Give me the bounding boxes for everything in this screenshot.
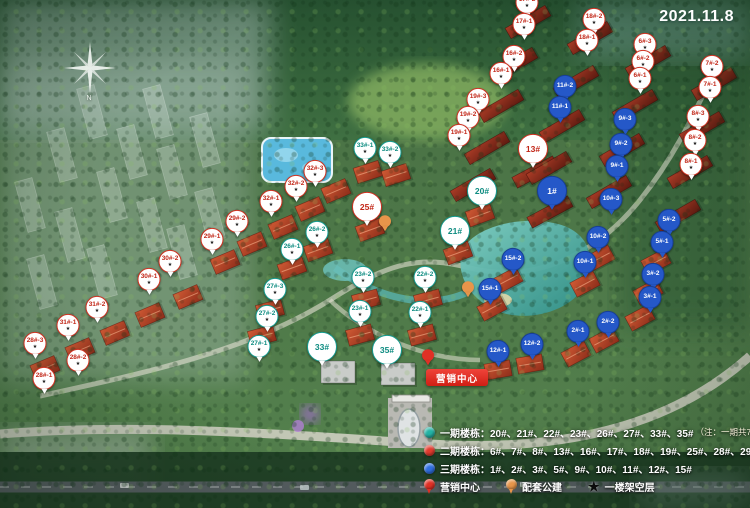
marker-23-1: 23#-1★ xyxy=(349,300,372,330)
stilt-star-icon: ★ xyxy=(588,480,600,493)
marker-33: 33# xyxy=(307,332,337,369)
marker-20: 20# xyxy=(467,176,497,213)
marker-10-1: 10#-1 xyxy=(574,251,597,281)
marker-11-1: 11#-1 xyxy=(549,96,572,126)
marker-3-1: 3#-1 xyxy=(639,286,662,316)
marker-18-1: 18#-1★ xyxy=(576,29,599,59)
marker-27-1: 27#-1★ xyxy=(248,335,271,365)
marker-26-2: 26#-2★ xyxy=(306,221,329,251)
marker-31-2: 31#-2★ xyxy=(86,296,109,326)
marker-33-2: 33#-2★ xyxy=(379,141,402,171)
marker-15-2: 15#-2 xyxy=(502,248,525,278)
marker-15-1: 15#-1 xyxy=(479,278,502,308)
marker-29-1: 29#-1★ xyxy=(201,228,224,258)
marker-27-3: 27#-3★ xyxy=(264,278,287,308)
marker-28-1: 28#-1★ xyxy=(33,367,56,397)
marker-7-1: 7#-1★ xyxy=(699,76,722,106)
amenity-pin xyxy=(462,281,474,300)
marker-32-1: 32#-1★ xyxy=(260,190,283,220)
phase1-circle-icon xyxy=(424,427,435,438)
marker-2-1: 2#-1 xyxy=(567,320,590,350)
marker-8-1: 8#-1★ xyxy=(680,153,703,183)
marker-1: 1# xyxy=(537,176,567,213)
marketing-center-banner: 营销中心 xyxy=(426,369,488,386)
marker-2-2: 2#-2 xyxy=(597,311,620,341)
marker-32-2: 32#-2★ xyxy=(285,175,308,205)
masterplan-rendering: N 2021.11.8 17#-2★17#-1★16#-2★16#-1★19#-… xyxy=(0,0,750,508)
marker-23-2: 23#-2★ xyxy=(352,266,375,296)
marker-17-1: 17#-1★ xyxy=(513,13,536,43)
marker-29-2: 29#-2★ xyxy=(226,210,249,240)
legend-phase1-label: 一期楼栋： xyxy=(440,425,490,440)
marker-30-2: 30#-2★ xyxy=(159,250,182,280)
legend-row-symbols: 营销中心 配套公建 ★ 一楼架空层 xyxy=(424,477,750,495)
legend-phase3-label: 三期楼栋： xyxy=(440,461,490,476)
marker-21: 21# xyxy=(440,216,470,253)
legend-phase1-value: 20#、21#、22#、23#、26#、27#、33#、35# xyxy=(490,425,693,440)
marker-33-1: 33#-1★ xyxy=(354,137,377,167)
marker-28-2: 28#-2★ xyxy=(67,349,90,379)
marker-5-1: 5#-1 xyxy=(651,231,674,261)
marker-13: 13# xyxy=(518,134,548,171)
date-stamp: 2021.11.8 xyxy=(659,8,734,26)
legend-row-phase2: 二期楼栋：6#、7#、8#、13#、16#、17#、18#、19#、25#、28… xyxy=(424,441,750,459)
legend-row-phase3: 三期楼栋：1#、2#、3#、5#、9#、10#、11#、12#、15# xyxy=(424,459,750,477)
phase3-circle-icon xyxy=(424,463,435,474)
marker-35: 35# xyxy=(372,335,402,372)
marker-31-1: 31#-1★ xyxy=(57,314,80,344)
legend-marketing-label: 营销中心 xyxy=(440,479,480,494)
legend-phase1-note: （注：一期共7栋楼180套住宅） xyxy=(695,426,750,438)
marker-22-1: 22#-1★ xyxy=(409,301,432,331)
marker-27-2: 27#-2★ xyxy=(256,305,279,335)
legend: 一期楼栋：20#、21#、22#、23#、26#、27#、33#、35# （注：… xyxy=(424,423,750,495)
marker-9-1: 9#-1 xyxy=(606,155,629,185)
amenity-pin-icon xyxy=(506,479,517,490)
legend-stilt-label: 一楼架空层 xyxy=(605,479,655,494)
marketing-pin-icon xyxy=(424,479,435,490)
marker-6-1: 6#-1★ xyxy=(629,67,652,97)
marker-30-1: 30#-1★ xyxy=(138,268,161,298)
legend-phase3-value: 1#、2#、3#、5#、9#、10#、11#、12#、15# xyxy=(490,461,692,476)
legend-row-phase1: 一期楼栋：20#、21#、22#、23#、26#、27#、33#、35# （注：… xyxy=(424,423,750,441)
amenity-pin xyxy=(379,215,391,234)
phase2-circle-icon xyxy=(424,445,435,456)
marker-25: 25# xyxy=(352,192,382,229)
marker-12-2: 12#-2 xyxy=(521,333,544,363)
marker-19-1: 19#-1★ xyxy=(448,124,471,154)
legend-amenity-label: 配套公建 xyxy=(522,479,562,494)
marker-12-1: 12#-1 xyxy=(487,340,510,370)
marker-10-3: 10#-3 xyxy=(600,188,623,218)
legend-phase2-label: 二期楼栋： xyxy=(440,443,490,458)
marker-22-2: 22#-2★ xyxy=(414,266,437,296)
marker-16-1: 16#-1★ xyxy=(490,62,513,92)
marker-26-1: 26#-1★ xyxy=(281,238,304,268)
marketing-pin xyxy=(422,349,434,368)
marker-28-3: 28#-3★ xyxy=(24,332,47,362)
legend-phase2-value: 6#、7#、8#、13#、16#、17#、18#、19#、25#、28#、29#… xyxy=(490,443,750,458)
